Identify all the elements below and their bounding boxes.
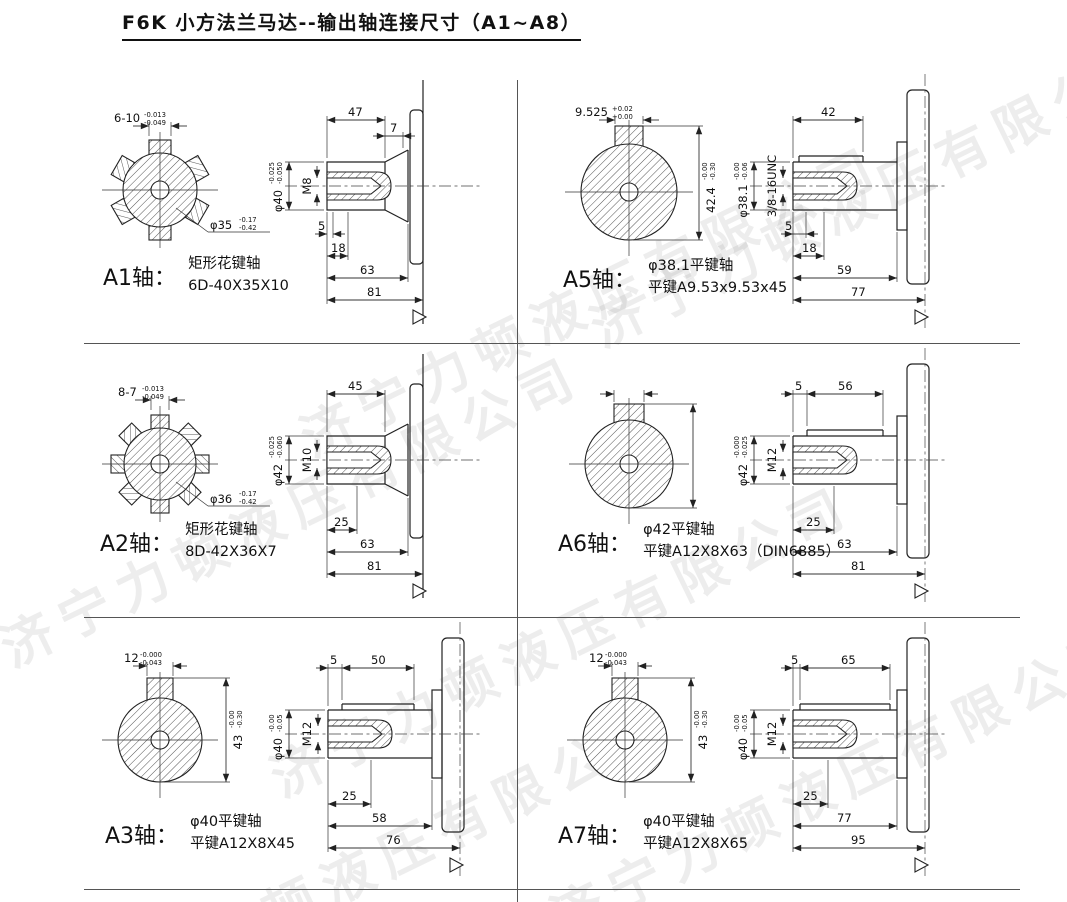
surface-symbol [450,858,463,872]
shaft-a2-title: A2轴： 矩形花键轴 8D-42X36X7 [100,520,277,564]
tol-upper: -0.17 [239,490,257,498]
key-dim-label: 9.525 [575,105,608,119]
thread-label: 3/8-16UNC [765,155,779,217]
tol-upper: -0.00 [733,162,741,180]
height-dim-label: 42.4 [704,187,718,213]
tol-lower: -0.30 [236,710,244,728]
dim-bottom-1: 25 [334,515,349,529]
dim-bottom-1: 25 [342,789,357,803]
dim-top: 50 [371,653,386,667]
shaft-a6-title: A6轴： φ42平键轴 平键A12X8X63（DIN6885） [558,520,840,564]
od-label: φ36 [210,492,232,506]
a6-side-view: M12 φ42 -0.000 -0.025 5 56 25 [733,348,945,604]
a2-side-view: M10 φ42 -0.025 -0.060 45 25 63 81 [268,354,480,598]
height-dim-label: 43 [231,735,245,750]
tol-lower: -0.06 [741,162,749,180]
shaft-a2-name: A2轴： [100,526,173,558]
dim-bottom-2: 18 [331,241,346,255]
spline-dim-label: 8-7 [118,385,137,399]
a7-side-view: M12 φ40 -0.00 -0.05 5 65 25 [733,622,945,878]
shaft-a1-spec-type: 矩形花键轴 [188,254,289,276]
shaft-a2-spec-type: 矩形花键轴 [185,520,277,542]
surface-symbol [413,310,426,324]
shaft-a1-spec-size: 6D-40X35X10 [188,276,289,298]
surface-symbol [915,584,928,598]
shaft-a1-name: A1轴： [103,260,176,292]
dim-bottom-2: 58 [372,811,387,825]
a1-cross-section: 6-10 -0.013 -0.049 φ35 -0.17 -0.42 [102,111,270,248]
surface-symbol [413,584,426,598]
dim-bottom-1: 5 [318,219,325,233]
tol-lower: -0.30 [701,710,709,728]
tol-upper: -0.00 [228,710,236,728]
panel-a5-drawing: 9.525 +0.02 +0.00 42.4 -0.00 -0.30 [545,72,985,344]
od-label: φ35 [210,218,232,232]
shaft-dia-label: φ40 [736,738,750,760]
thread-label: M8 [300,177,314,194]
surface-symbol [915,858,928,872]
tol-upper: -0.000 [140,651,162,659]
tol-upper: -0.025 [268,436,276,458]
shaft-dia-label: φ42 [271,464,285,486]
shaft-dia-label: φ40 [271,738,285,760]
tol-lower: -0.049 [142,393,164,401]
dim-bottom-4: 81 [367,285,382,299]
page-title: F6K 小方法兰马达--输出轴连接尺寸（A1~A8） [122,8,581,41]
tol-lower: -0.060 [276,436,284,458]
dim-bottom-3: 81 [851,559,866,573]
spline-dim-label: 6-10 [114,111,140,125]
panel-a1-drawing: 6-10 -0.013 -0.049 φ35 -0.17 -0.42 M8 [80,72,520,344]
tol-lower: -0.42 [239,498,257,506]
tol-lower: -0.05 [276,714,284,732]
tol-lower: -0.30 [709,162,717,180]
a5-cross-section: 9.525 +0.02 +0.00 42.4 -0.00 -0.30 [565,105,718,256]
drawing-sheet: 济宁力顿液压有限公司 济宁力顿液压有限公司 济宁力顿液压有限公司 济宁力顿液压有… [0,0,1067,902]
shaft-a7-spec-size: 平键A12X8X65 [643,834,748,856]
tol-lower: -0.043 [605,659,627,667]
a6-cross-section [569,390,697,524]
tol-lower: -0.42 [239,224,257,232]
tol-upper: -0.00 [733,714,741,732]
tol-lower: -0.025 [741,436,749,458]
dim-top: 65 [841,653,856,667]
dim-bottom-3: 59 [837,263,852,277]
dim-top: 56 [838,379,853,393]
tol-upper: -0.000 [733,436,741,458]
thread-label: M12 [765,722,779,747]
shaft-a5-spec-type: φ38.1平键轴 [648,256,787,278]
dim-top-5: 5 [330,653,337,667]
tol-lower: -0.050 [276,162,284,184]
dim-bottom-3: 76 [386,833,401,847]
dim-top: 47 [348,105,363,119]
shaft-a6-spec-size: 平键A12X8X63（DIN6885） [643,542,840,564]
thread-label: M12 [300,722,314,747]
dim-bottom-3: 95 [851,833,866,847]
dim-top-b: 7 [390,121,397,135]
tol-upper: -0.025 [268,162,276,184]
shaft-a6-spec-type: φ42平键轴 [643,520,840,542]
panel-a6-drawing: M12 φ42 -0.000 -0.025 5 56 25 [545,346,985,618]
tol-upper: -0.00 [701,162,709,180]
dim-top-5: 5 [795,379,802,393]
a2-cross-section: 8-7 -0.013 -0.049 φ36 -0.17 -0.42 [102,385,270,522]
dim-top: 45 [348,379,363,393]
shaft-a3-spec-size: 平键A12X8X45 [190,834,295,856]
tol-upper: -0.000 [605,651,627,659]
shaft-a3-spec-type: φ40平键轴 [190,812,295,834]
shaft-a7-name: A7轴： [558,818,631,850]
shaft-a7-spec-type: φ40平键轴 [643,812,748,834]
tol-upper: -0.00 [268,714,276,732]
shaft-a6-name: A6轴： [558,526,631,558]
shaft-dia-label: φ40 [271,190,285,212]
dim-bottom-1: 25 [803,789,818,803]
surface-symbol [915,310,928,324]
dim-bottom-2: 63 [360,537,375,551]
shaft-a5-name: A5轴： [563,262,636,294]
tol-lower: -0.043 [140,659,162,667]
shaft-a5-spec-size: 平键A9.53x9.53x45 [648,278,787,300]
thread-label: M10 [300,448,314,473]
dim-bottom-2: 77 [837,811,852,825]
dim-bottom-3: 63 [360,263,375,277]
dim-top: 42 [821,105,836,119]
dim-top-5: 5 [791,653,798,667]
height-dim-label: 43 [696,735,710,750]
thread-label: M12 [765,448,779,473]
dim-bottom-2: 18 [802,241,817,255]
tol-upper: -0.00 [693,710,701,728]
shaft-dia-label: φ38.1 [736,184,750,217]
shaft-a3-title: A3轴： φ40平键轴 平键A12X8X45 [105,812,295,856]
tol-upper: -0.17 [239,216,257,224]
shaft-a3-name: A3轴： [105,818,178,850]
shaft-a1-title: A1轴： 矩形花键轴 6D-40X35X10 [103,254,289,298]
a7-cross-section: 12 -0.000 -0.043 43 -0.00 -0.30 [567,651,710,798]
tol-lower: -0.05 [741,714,749,732]
panel-a2-drawing: 8-7 -0.013 -0.049 φ36 -0.17 -0.42 M10 [80,346,520,618]
key-dim-label: 12 [124,651,139,665]
key-dim-label: 12 [589,651,604,665]
tol-upper: +0.02 [612,105,633,113]
a3-cross-section: 12 -0.000 -0.043 43 -0.00 -0.30 [102,651,245,798]
tol-lower: -0.049 [144,119,166,127]
tol-upper: -0.013 [144,111,166,119]
shaft-dia-label: φ42 [736,464,750,486]
dim-bottom-1: 5 [785,219,792,233]
dim-bottom-3: 81 [367,559,382,573]
dim-bottom-4: 77 [851,285,866,299]
shaft-a5-title: A5轴： φ38.1平键轴 平键A9.53x9.53x45 [563,256,787,300]
tol-upper: -0.013 [142,385,164,393]
shaft-a2-spec-size: 8D-42X36X7 [185,542,277,564]
a1-side-view: M8 φ40 -0.025 -0.050 47 7 [268,80,480,324]
tol-lower: +0.00 [612,113,633,121]
a3-side-view: M12 φ40 -0.00 -0.05 5 50 25 [268,622,480,878]
shaft-a7-title: A7轴： φ40平键轴 平键A12X8X65 [558,812,748,856]
